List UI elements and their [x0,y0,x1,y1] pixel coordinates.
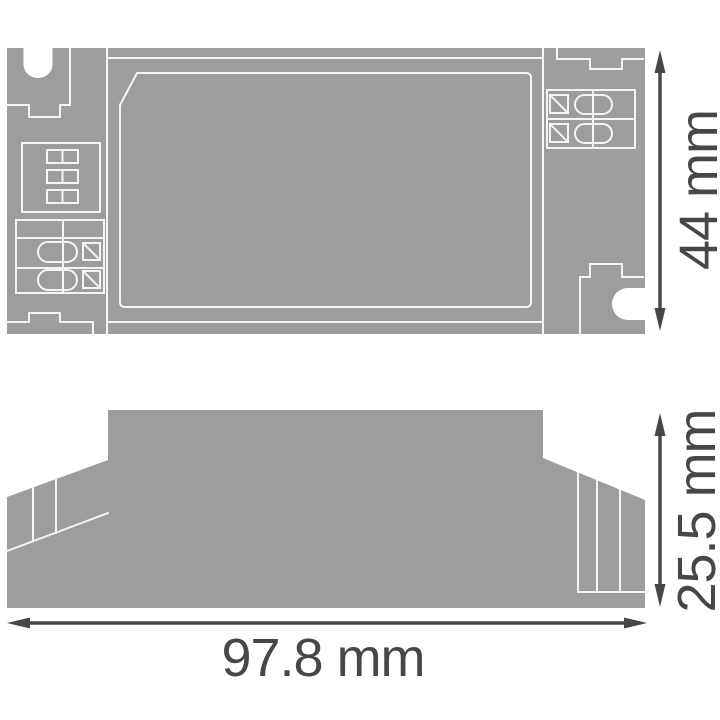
side-view-body [7,410,645,608]
height-dimension-arrow [655,50,666,331]
width-dimension-label: 97.8 mm [221,631,424,685]
width-dimension-arrow [7,618,647,629]
keyhole-slot-top-left [24,28,53,78]
depth-dimension-arrow [655,413,666,607]
dimension-drawing-canvas: 44 mm 25.5 mm 97.8 mm [0,0,720,720]
side-view [7,410,645,608]
keyhole-slot-bottom-right [612,288,660,320]
top-view [7,28,660,334]
height-dimension-label: 44 mm [672,110,720,270]
depth-dimension-label: 25.5 mm [670,409,720,612]
driver-dimension-drawing [0,0,720,720]
